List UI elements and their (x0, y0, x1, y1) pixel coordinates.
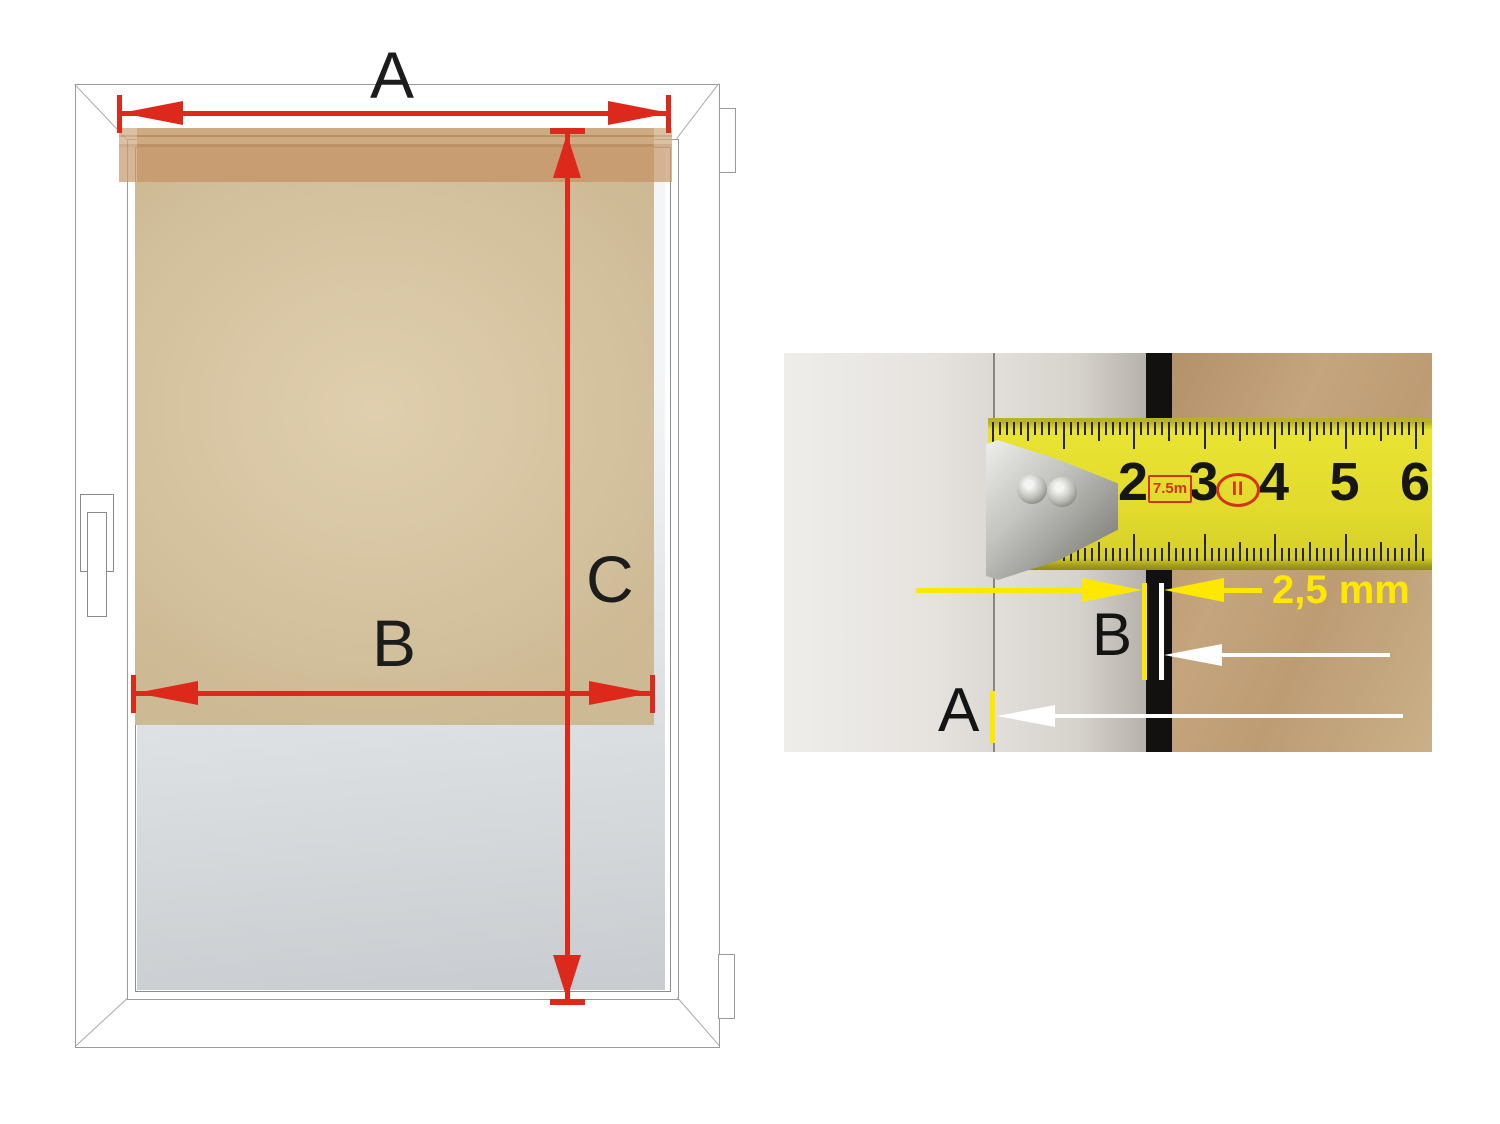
tape-tick (1309, 422, 1311, 441)
tape-tick (1204, 422, 1206, 449)
tape-number: 2 (1118, 455, 1148, 509)
tape-tick (1168, 422, 1170, 441)
tape-tick (1182, 548, 1184, 561)
tape-tick (1091, 422, 1093, 435)
tape-tick (1182, 422, 1184, 435)
dim-a-arrowhead-left (121, 101, 183, 125)
tape-tick (1020, 422, 1022, 435)
tape-tick (1380, 422, 1382, 441)
a-arrow-shaft (1055, 714, 1403, 718)
tape-tick (1154, 422, 1156, 435)
tape-tick (1323, 422, 1325, 435)
tape-tick (1352, 422, 1354, 435)
tape-tick (1048, 422, 1050, 435)
tape-tick (1415, 534, 1417, 561)
gap-tick-yellow (1142, 583, 1147, 680)
tape-tick (1337, 422, 1339, 435)
tape-tick (1105, 422, 1107, 435)
tape-tick (1330, 422, 1332, 435)
tape-tick (1337, 548, 1339, 561)
gap-arrow-right-shaft (1224, 588, 1262, 593)
tape-tick (1274, 422, 1276, 449)
tape-tick (1302, 548, 1304, 561)
tape-tick (1211, 422, 1213, 435)
tape-tick (1041, 422, 1043, 435)
tape-tick (1366, 422, 1368, 435)
tape-tick (1359, 422, 1361, 435)
dim-a-label: A (370, 42, 414, 108)
tape-tick (1034, 422, 1036, 435)
a-tick-yellow (990, 691, 995, 743)
tape-tick (1098, 422, 1100, 441)
photo-label-a: A (938, 680, 979, 742)
tape-tick (1084, 422, 1086, 435)
tape-tick (1133, 422, 1135, 449)
tape-tick (1408, 548, 1410, 561)
tape-tick (1408, 422, 1410, 435)
tape-tick (1387, 422, 1389, 435)
tape-tick (1387, 548, 1389, 561)
tape-tick (1345, 422, 1347, 449)
tape-tick (1330, 548, 1332, 561)
tape-tick (1239, 542, 1241, 561)
tape-tick (1154, 548, 1156, 561)
tape-tick (1394, 548, 1396, 561)
tape-tick (1105, 548, 1107, 561)
tape-tick (1147, 422, 1149, 435)
tape-tick (1126, 548, 1128, 561)
dim-a-arrowhead-right (608, 101, 670, 125)
tape-tick (1211, 548, 1213, 561)
tape-tick (1352, 548, 1354, 561)
tape-tick (1239, 422, 1241, 441)
measuring-photo: 23456 7.5m II 2,5 mm B A (784, 353, 1432, 752)
tape-tick (1232, 422, 1234, 435)
tape-tick (1323, 548, 1325, 561)
window-handle-grip (87, 512, 107, 617)
tape-tick (1126, 422, 1128, 435)
window-hinge-top (719, 108, 736, 173)
tape-length-badge: 7.5m (1148, 475, 1192, 503)
tape-tick (1401, 548, 1403, 561)
gap-arrow-left-shaft (916, 588, 1082, 593)
blind-cassette-left-cap (119, 128, 137, 182)
dim-c-shaft (565, 134, 570, 1000)
tape-tick (1246, 422, 1248, 435)
tape-number: 6 (1400, 455, 1430, 509)
tape-tick (1140, 548, 1142, 561)
tape-tick (1366, 548, 1368, 561)
tape-tick (1077, 422, 1079, 435)
tape-tick (1140, 422, 1142, 435)
tape-tick (1112, 548, 1114, 561)
tape-tick (1295, 548, 1297, 561)
tape-tick (1147, 548, 1149, 561)
tape-tick (1415, 422, 1417, 449)
tape-tick (1246, 548, 1248, 561)
tape-tick (1260, 548, 1262, 561)
tape-tick (1274, 534, 1276, 561)
tape-tick (1225, 548, 1227, 561)
tape-tick (1204, 534, 1206, 561)
tape-tick (1253, 422, 1255, 435)
tape-tick (1175, 548, 1177, 561)
b-arrow-shaft (1222, 653, 1390, 657)
tape-accuracy-class-badge: II (1216, 473, 1260, 507)
tape-number: 5 (1329, 455, 1359, 509)
tape-tick (1309, 542, 1311, 561)
tape-tick (1091, 548, 1093, 561)
tape-number: 4 (1259, 455, 1289, 509)
tape-tick (1119, 548, 1121, 561)
b-arrowhead (1164, 644, 1222, 666)
tape-tick (1373, 548, 1375, 561)
gap-arrowhead-right-pointing (1082, 578, 1142, 602)
gap-arrowhead-left-pointing (1164, 578, 1224, 602)
tape-tick (1119, 422, 1121, 435)
tape-number: 3 (1188, 455, 1218, 509)
tape-tick (1232, 548, 1234, 561)
tape-tick (1359, 548, 1361, 561)
tape-tick (1168, 542, 1170, 561)
tape-tick (1253, 548, 1255, 561)
tape-tick (1189, 422, 1191, 435)
dim-b-shaft (136, 691, 652, 696)
tape-tick (1133, 534, 1135, 561)
tape-tick (1189, 548, 1191, 561)
tape-tick (1013, 422, 1015, 435)
tape-tick (1027, 422, 1029, 441)
tape-tick (999, 422, 1001, 435)
tape-tick (1218, 548, 1220, 561)
tape-hook-rivet-left (1017, 474, 1047, 504)
tape-tick (1225, 422, 1227, 435)
roller-blind-measurement-guide: A B C 23456 7.5m II (0, 0, 1500, 1124)
tape-tick (1373, 422, 1375, 435)
tape-tick (1070, 422, 1072, 435)
blind-cassette-right-cap (654, 128, 672, 182)
tape-tick (1288, 422, 1290, 435)
window-hinge-bottom (718, 954, 735, 1019)
tape-tick (1175, 422, 1177, 435)
tape-tick (1055, 422, 1057, 435)
tape-tick (1380, 542, 1382, 561)
tape-tick (1063, 422, 1065, 449)
tape-tick (1316, 548, 1318, 561)
tape-tick (1422, 548, 1424, 561)
tape-tick (1316, 422, 1318, 435)
dim-c-arrowhead-bottom (553, 955, 581, 999)
tape-tick (1281, 422, 1283, 435)
tape-tick (1161, 548, 1163, 561)
dim-c-label: C (586, 546, 634, 612)
tape-tick (1302, 422, 1304, 435)
tape-tick (1218, 422, 1220, 435)
tape-tick (1401, 422, 1403, 435)
tape-tick (1084, 548, 1086, 561)
tape-tick (1260, 422, 1262, 435)
tape-tick (1394, 422, 1396, 435)
dim-b-arrowhead-left (136, 681, 198, 705)
dim-b-label: B (372, 610, 416, 676)
tape-tick (1295, 422, 1297, 435)
tape-tick (1422, 422, 1424, 435)
tape-tick (1267, 548, 1269, 561)
tape-tick (1267, 422, 1269, 435)
photo-label-b: B (1092, 605, 1132, 665)
tape-tick (1288, 548, 1290, 561)
gap-size-label: 2,5 mm (1272, 570, 1410, 610)
dim-b-arrowhead-right (589, 681, 651, 705)
a-arrowhead (997, 705, 1055, 727)
tape-tick (1196, 422, 1198, 435)
tape-tick (1098, 542, 1100, 561)
tape-tick (1345, 534, 1347, 561)
dim-c-arrowhead-top (553, 134, 581, 178)
tape-tick (1112, 422, 1114, 435)
tape-tick (1196, 548, 1198, 561)
tape-tick (1281, 548, 1283, 561)
tape-tick (1161, 422, 1163, 435)
tape-hook-rivet-right (1047, 477, 1077, 507)
tape-tick (1006, 422, 1008, 435)
